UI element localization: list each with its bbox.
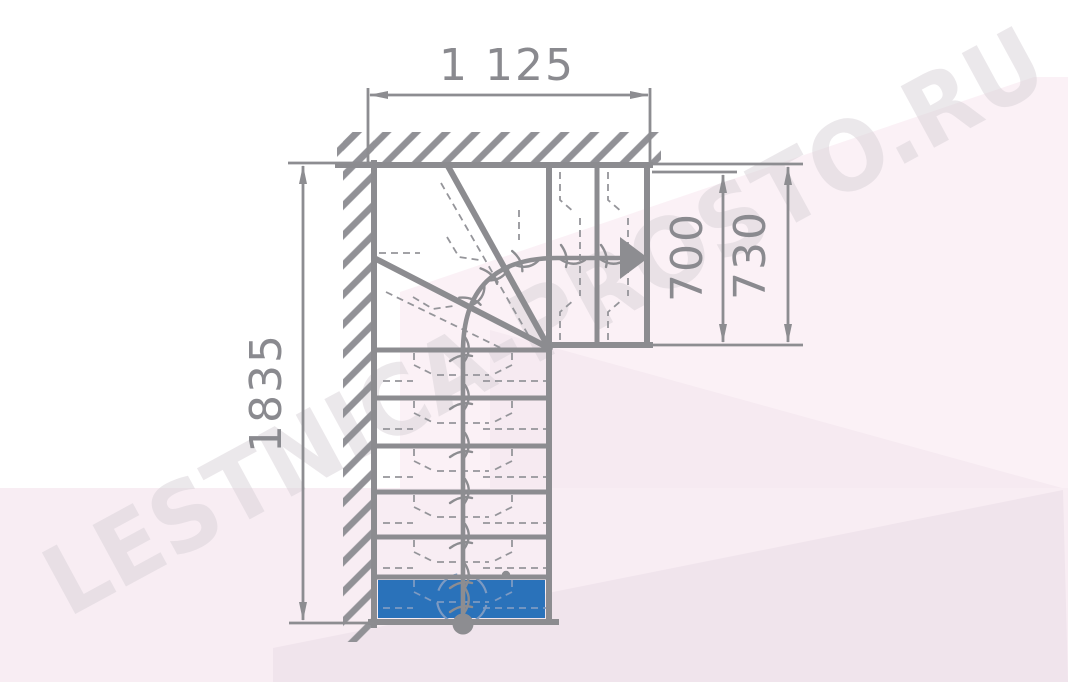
staircase-plan-drawing: LESTNICA-PROSTO.RU: [0, 0, 1068, 682]
dim-label-730: 730: [725, 210, 776, 300]
dim-label-700: 700: [662, 212, 713, 302]
dim-label-top: 1 125: [439, 40, 575, 91]
wall-hatch-top: [337, 132, 661, 163]
wall-hatch-left: [343, 132, 374, 642]
small-dot: [502, 571, 510, 579]
dim-label-left: 1835: [241, 333, 292, 453]
start-circle: [453, 614, 474, 635]
stair-plan-svg: LESTNICA-PROSTO.RU: [0, 0, 1068, 682]
